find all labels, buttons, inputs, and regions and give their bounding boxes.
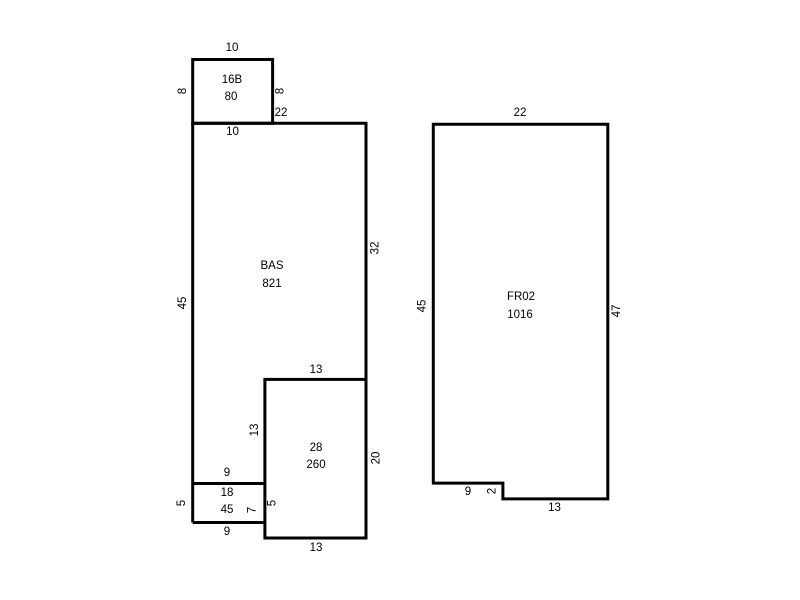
svg-text:BAS: BAS: [260, 260, 283, 272]
svg-text:22: 22: [514, 107, 527, 119]
svg-text:32: 32: [370, 242, 382, 255]
svg-text:13: 13: [310, 364, 323, 376]
svg-text:1016: 1016: [507, 309, 533, 321]
svg-text:5: 5: [267, 500, 279, 506]
svg-text:22: 22: [275, 107, 288, 119]
svg-text:20: 20: [371, 452, 383, 465]
svg-text:10: 10: [226, 126, 239, 138]
svg-text:821: 821: [262, 278, 281, 290]
svg-text:13: 13: [548, 502, 561, 514]
svg-text:13: 13: [249, 424, 261, 437]
svg-text:47: 47: [611, 305, 623, 318]
svg-text:80: 80: [225, 91, 238, 103]
svg-text:45: 45: [221, 504, 234, 516]
svg-text:13: 13: [310, 542, 323, 554]
svg-text:9: 9: [224, 467, 230, 479]
svg-text:28: 28: [310, 442, 323, 454]
svg-text:16B: 16B: [222, 74, 243, 86]
svg-text:5: 5: [176, 500, 188, 506]
svg-text:18: 18: [221, 487, 234, 499]
svg-text:45: 45: [417, 300, 429, 313]
svg-text:9: 9: [224, 526, 230, 538]
svg-text:260: 260: [306, 459, 325, 471]
svg-text:FR02: FR02: [507, 291, 535, 303]
svg-text:10: 10: [226, 42, 239, 54]
svg-text:2: 2: [487, 488, 499, 494]
svg-text:9: 9: [465, 486, 471, 498]
svg-text:45: 45: [177, 297, 189, 310]
svg-text:8: 8: [177, 88, 189, 94]
svg-text:8: 8: [275, 88, 287, 94]
svg-text:7: 7: [247, 507, 259, 513]
